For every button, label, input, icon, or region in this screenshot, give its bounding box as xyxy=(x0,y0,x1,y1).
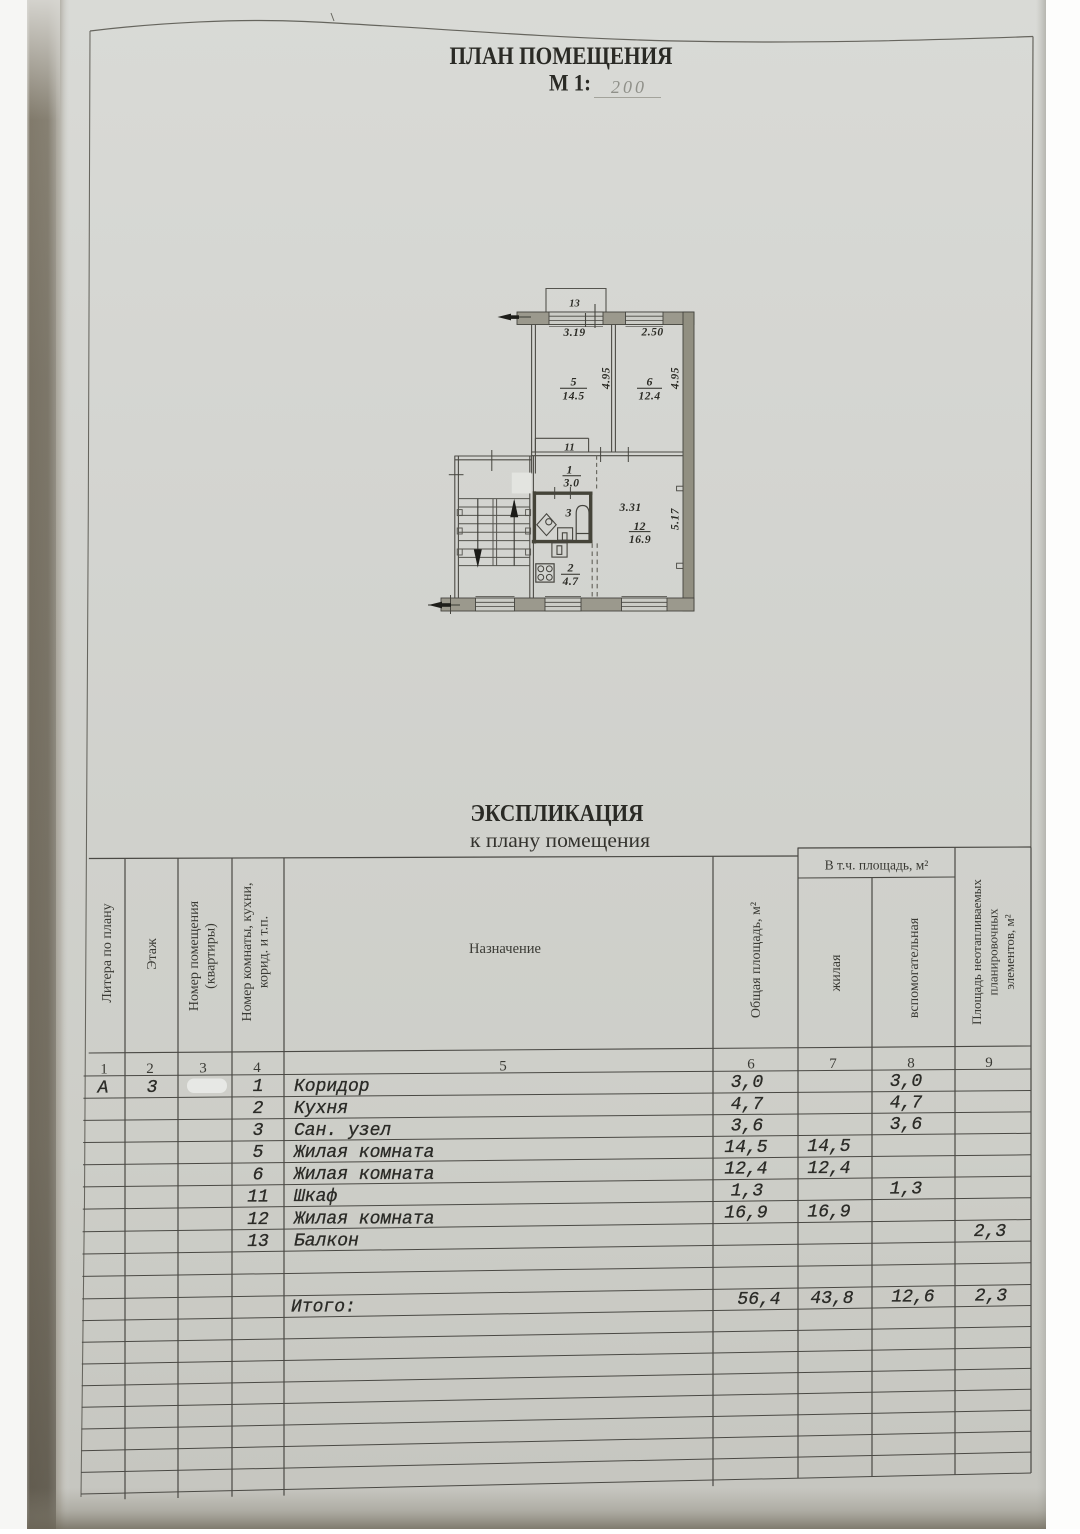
svg-text:1: 1 xyxy=(253,1077,264,1097)
svg-text:5: 5 xyxy=(571,375,577,389)
svg-text:16,9: 16,9 xyxy=(724,1204,767,1224)
svg-text:5.17: 5.17 xyxy=(670,507,682,530)
svg-text:2: 2 xyxy=(253,1099,264,1119)
svg-text:Номер комнаты, кухни,: Номер комнаты, кухни, xyxy=(240,882,255,1021)
svg-text:9: 9 xyxy=(985,1055,993,1071)
svg-text:3: 3 xyxy=(147,1078,158,1098)
svg-text:3,6: 3,6 xyxy=(731,1116,764,1136)
svg-text:3.0: 3.0 xyxy=(563,478,580,490)
svg-text:ПЛАН ПОМЕЩЕНИЯ: ПЛАН ПОМЕЩЕНИЯ xyxy=(450,43,673,70)
svg-text:6: 6 xyxy=(253,1165,264,1185)
svg-text:планировочных: планировочных xyxy=(986,908,1001,996)
svg-text:8: 8 xyxy=(907,1055,915,1071)
svg-text:3,0: 3,0 xyxy=(731,1073,764,1093)
svg-text:Номер помещения: Номер помещения xyxy=(187,900,202,1011)
svg-text:4.95: 4.95 xyxy=(670,367,682,390)
svg-text:Жилая комната: Жилая комната xyxy=(293,1209,434,1229)
svg-text:13: 13 xyxy=(569,299,580,310)
svg-text:12,4: 12,4 xyxy=(807,1159,850,1179)
svg-text:вспомогательная: вспомогательная xyxy=(907,917,922,1018)
svg-text:11: 11 xyxy=(564,442,574,454)
svg-text:Итого:: Итого: xyxy=(291,1298,356,1318)
svg-text:Этаж: Этаж xyxy=(145,938,160,970)
svg-text:Шкаф: Шкаф xyxy=(293,1187,337,1207)
svg-text:ЭКСПЛИКАЦИЯ: ЭКСПЛИКАЦИЯ xyxy=(471,801,644,827)
svg-text:5: 5 xyxy=(253,1143,264,1163)
svg-text:2,3: 2,3 xyxy=(975,1286,1008,1306)
svg-text:2,3: 2,3 xyxy=(974,1222,1007,1242)
svg-text:Сан. узел: Сан. узел xyxy=(294,1121,391,1141)
svg-text:В т.ч. площадь, м²: В т.ч. площадь, м² xyxy=(825,858,929,873)
svg-text:1,3: 1,3 xyxy=(731,1181,764,1201)
svg-text:4.95: 4.95 xyxy=(601,367,613,390)
svg-text:7: 7 xyxy=(829,1056,837,1072)
svg-text:А: А xyxy=(97,1078,109,1098)
svg-text:12,6: 12,6 xyxy=(891,1288,934,1308)
svg-text:Общая площадь, м²: Общая площадь, м² xyxy=(749,902,764,1018)
svg-text:4: 4 xyxy=(253,1060,261,1076)
svg-text:Литера по плану: Литера по плану xyxy=(100,903,115,1002)
svg-text:3.31: 3.31 xyxy=(618,502,641,514)
svg-text:12.4: 12.4 xyxy=(638,391,660,403)
svg-text:(квартиры): (квартиры) xyxy=(204,923,219,989)
svg-text:200: 200 xyxy=(611,77,647,97)
svg-text:12: 12 xyxy=(634,519,646,533)
svg-text:корид. и т.п.: корид. и т.п. xyxy=(257,916,272,988)
svg-text:к плану помещения: к плану помещения xyxy=(470,830,650,852)
svg-text:3: 3 xyxy=(565,506,572,520)
svg-text:Жилая комната: Жилая комната xyxy=(293,1165,434,1185)
svg-text:56,4: 56,4 xyxy=(737,1290,780,1310)
svg-text:3: 3 xyxy=(253,1121,264,1141)
svg-text:Коридор: Коридор xyxy=(294,1077,370,1097)
svg-text:6: 6 xyxy=(647,375,653,389)
svg-text:жилая: жилая xyxy=(829,954,844,992)
svg-text:2.50: 2.50 xyxy=(640,327,663,339)
svg-text:Балкон: Балкон xyxy=(294,1232,359,1252)
svg-text:3,6: 3,6 xyxy=(890,1115,923,1135)
svg-text:12,4: 12,4 xyxy=(724,1160,767,1180)
svg-text:1: 1 xyxy=(100,1061,108,1077)
svg-text:4.7: 4.7 xyxy=(562,576,580,588)
svg-text:14,5: 14,5 xyxy=(807,1137,850,1157)
svg-text:3: 3 xyxy=(199,1061,207,1077)
svg-text:1: 1 xyxy=(567,463,573,477)
svg-text:М 1:: М 1: xyxy=(549,71,591,96)
svg-text:14.5: 14.5 xyxy=(562,391,584,403)
svg-text:6: 6 xyxy=(747,1057,755,1073)
svg-text:43,8: 43,8 xyxy=(810,1289,853,1309)
svg-text:3.19: 3.19 xyxy=(562,327,585,339)
svg-text:2: 2 xyxy=(567,561,574,575)
svg-text:14,5: 14,5 xyxy=(724,1138,767,1158)
svg-text:16,9: 16,9 xyxy=(807,1202,850,1222)
svg-text:4,7: 4,7 xyxy=(731,1095,764,1115)
svg-text:1,3: 1,3 xyxy=(890,1180,923,1200)
svg-text:12: 12 xyxy=(247,1210,269,1230)
svg-text:11: 11 xyxy=(247,1187,269,1207)
svg-text:3,0: 3,0 xyxy=(890,1072,923,1092)
svg-text:13: 13 xyxy=(247,1232,269,1252)
svg-text:16.9: 16.9 xyxy=(629,534,651,546)
svg-text:Площадь неотапливаемых: Площадь неотапливаемых xyxy=(969,879,984,1025)
svg-text:Назначение: Назначение xyxy=(469,941,541,957)
svg-text:Жилая комната: Жилая комната xyxy=(293,1143,434,1163)
svg-text:5: 5 xyxy=(499,1058,507,1074)
svg-text:элементов, м²: элементов, м² xyxy=(1002,914,1017,989)
svg-text:4,7: 4,7 xyxy=(890,1093,923,1113)
svg-text:Кухня: Кухня xyxy=(294,1099,348,1119)
svg-text:2: 2 xyxy=(146,1061,154,1077)
